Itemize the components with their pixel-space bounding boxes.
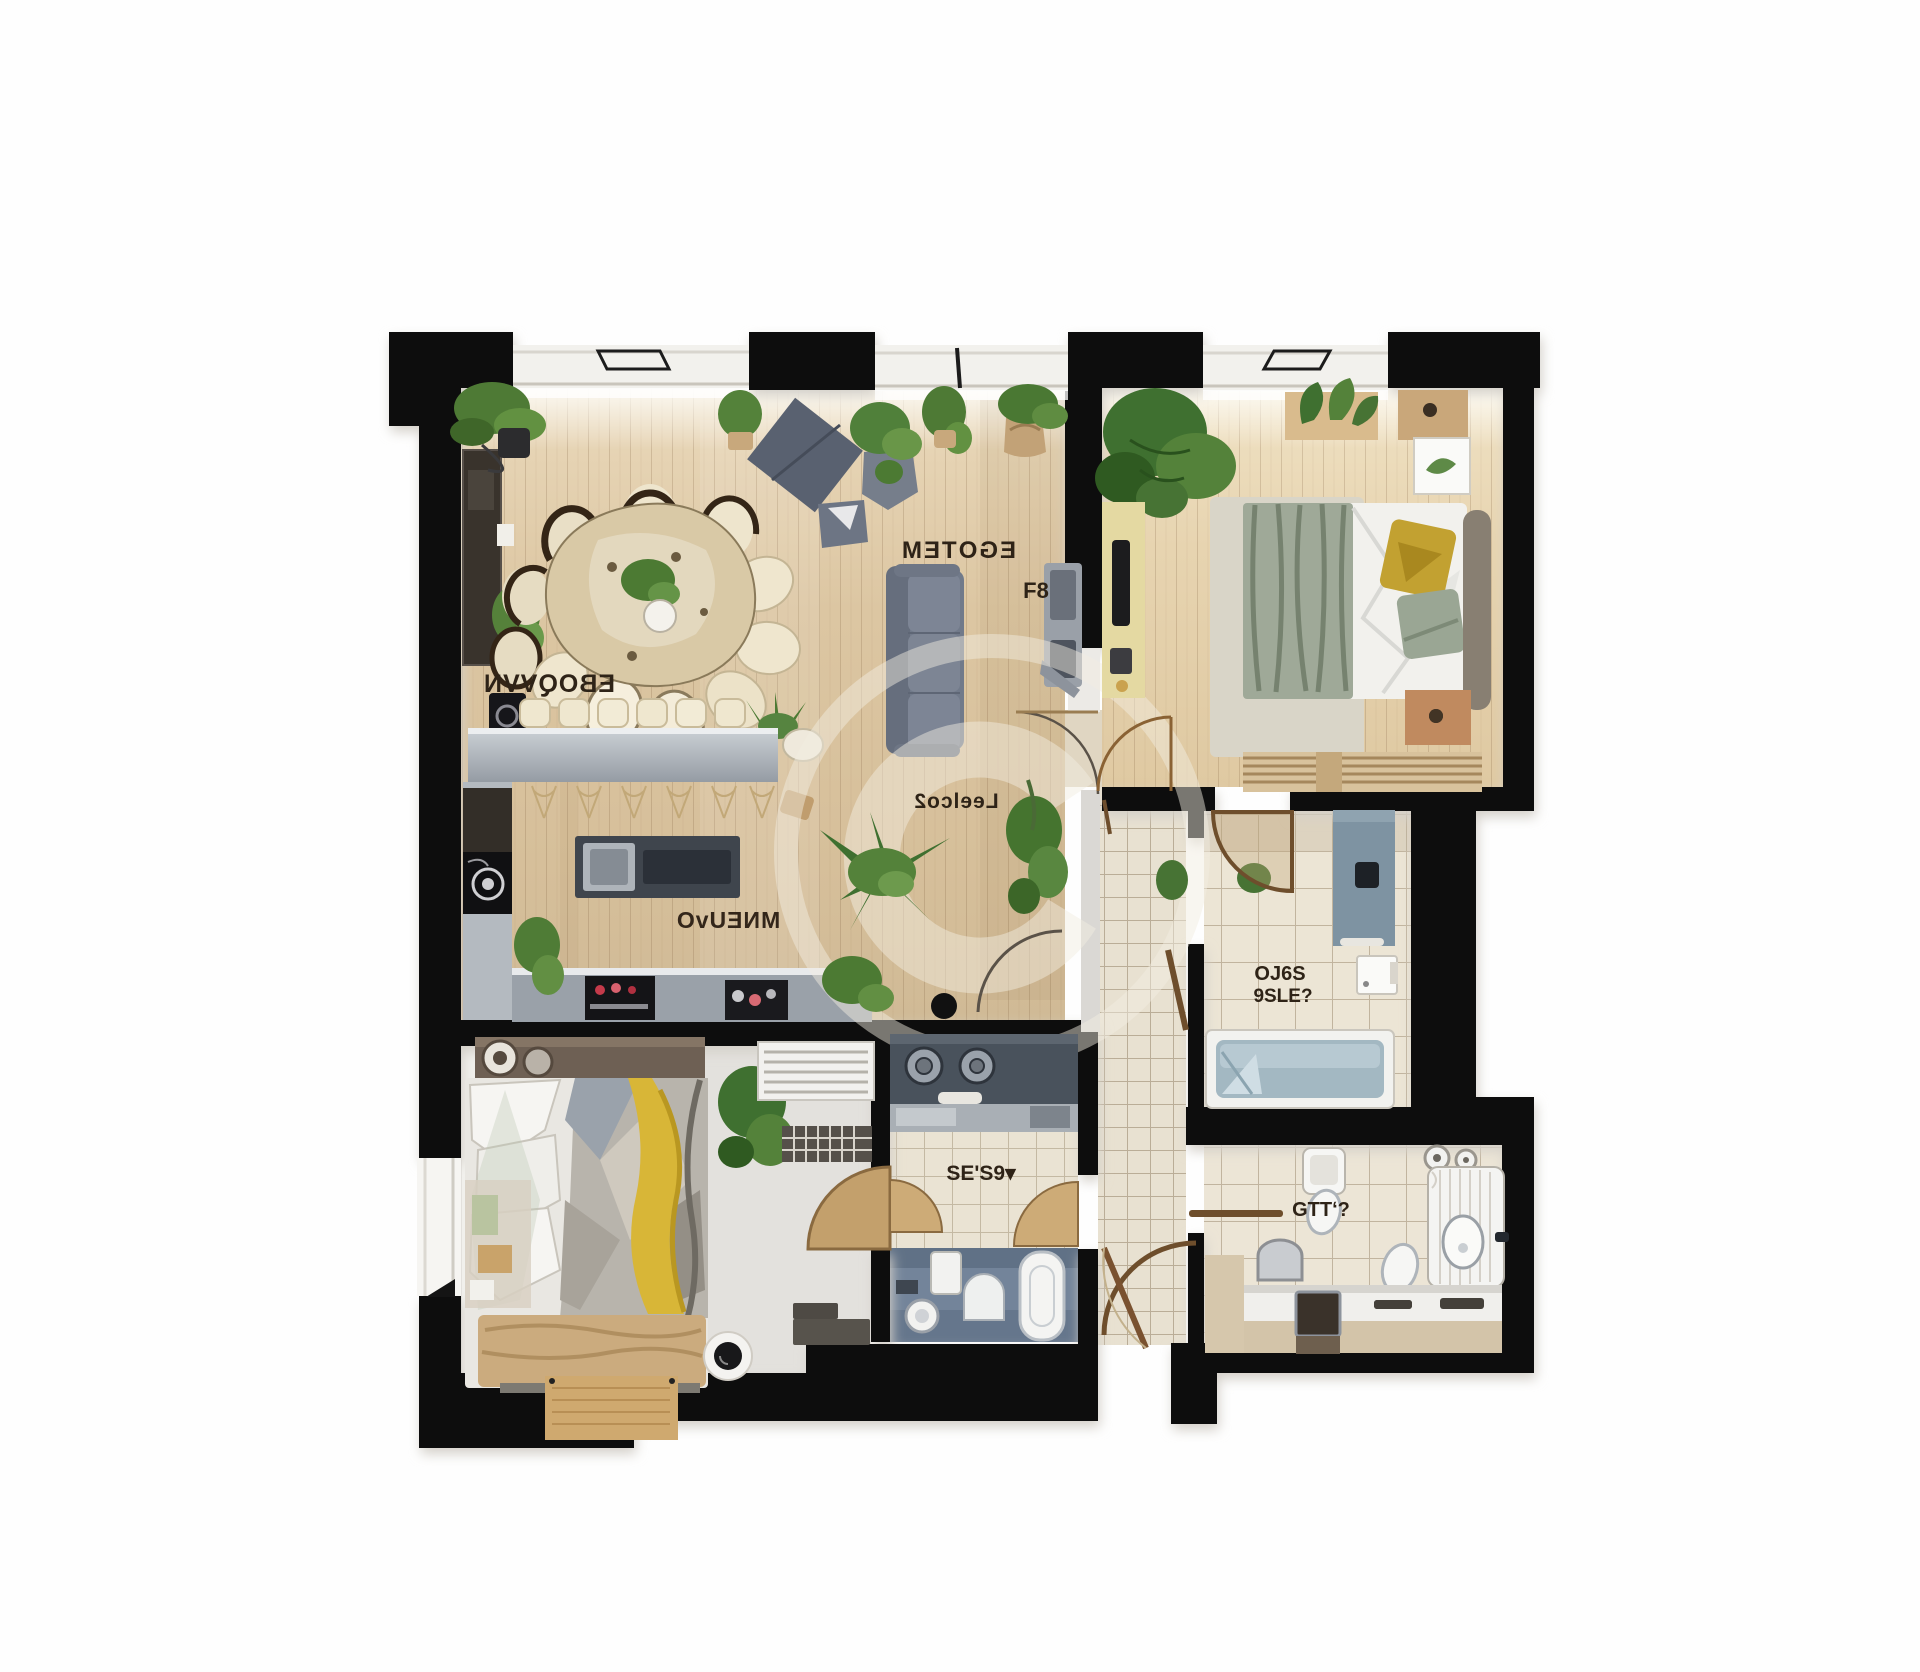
svg-text:OJ6S: OJ6S [1254,963,1305,985]
svg-text:F8: F8 [1023,578,1049,603]
svg-text:Leelco2: Leelco2 [913,790,998,813]
svg-text:EBOQVVN: EBOQVVN [483,670,615,698]
svg-text:SE'S9▾: SE'S9▾ [946,1162,1017,1185]
svg-text:GTTʻ?: GTTʻ? [1292,1199,1350,1221]
svg-text:MNEUvO: MNEUvO [676,907,780,933]
svg-text:EGOTEM: EGOTEM [900,537,1016,564]
svg-text:9SLE?: 9SLE? [1253,986,1312,1007]
